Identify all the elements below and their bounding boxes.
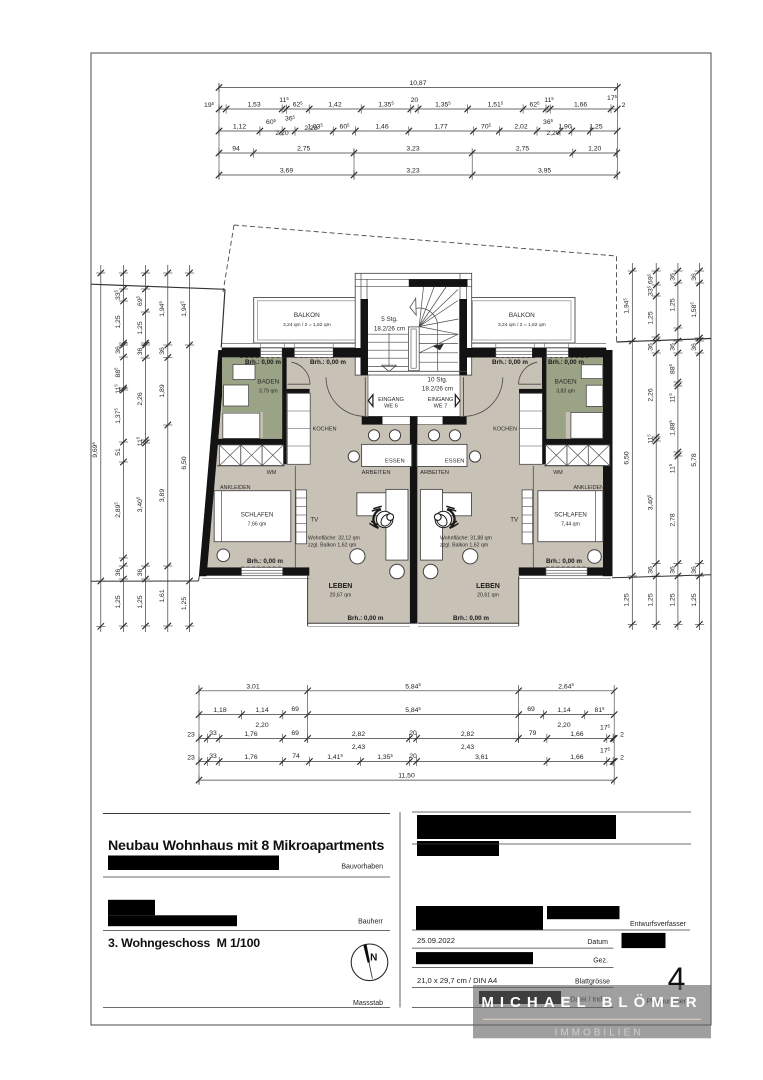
svg-text:1,25: 1,25 xyxy=(669,298,676,311)
svg-text:Brh.: 0,00 m: Brh.: 0,00 m xyxy=(453,615,489,622)
svg-text:3,89: 3,89 xyxy=(159,489,166,502)
svg-text:BADEN: BADEN xyxy=(555,378,577,385)
svg-text:ANKLEIDEN: ANKLEIDEN xyxy=(573,485,604,491)
svg-text:36: 36 xyxy=(669,343,676,351)
svg-text:MICHAEL BLÖMER: MICHAEL BLÖMER xyxy=(481,994,702,1011)
svg-text:Entwurfsverfasser: Entwurfsverfasser xyxy=(630,921,687,928)
svg-text:2,43: 2,43 xyxy=(352,744,365,751)
svg-text:2,78: 2,78 xyxy=(669,513,676,526)
svg-text:2,75: 2,75 xyxy=(297,146,310,153)
svg-text:25.09.2022: 25.09.2022 xyxy=(417,936,455,945)
svg-text:20,67 qm: 20,67 qm xyxy=(330,592,352,598)
svg-text:36: 36 xyxy=(115,569,122,577)
svg-text:LEBEN: LEBEN xyxy=(476,583,500,590)
svg-text:20: 20 xyxy=(409,730,417,737)
svg-text:Massstab: Massstab xyxy=(353,1000,383,1007)
svg-text:N: N xyxy=(370,952,377,963)
svg-text:1,25: 1,25 xyxy=(181,597,188,610)
svg-text:Brh.: 0,00 m: Brh.: 0,00 m xyxy=(245,359,281,366)
svg-text:2: 2 xyxy=(620,732,624,739)
svg-text:1,25: 1,25 xyxy=(115,315,122,328)
svg-text:3,23: 3,23 xyxy=(406,168,419,175)
svg-text:1,46: 1,46 xyxy=(375,124,388,131)
svg-text:79: 79 xyxy=(529,730,537,737)
svg-text:33: 33 xyxy=(209,753,217,760)
svg-text:Wohnfläche: 31,88 qm: Wohnfläche: 31,88 qm xyxy=(440,535,492,541)
svg-text:1,14: 1,14 xyxy=(557,707,570,714)
svg-text:3,61: 3,61 xyxy=(475,754,488,761)
svg-text:Wohnfläche: 32,12 qm: Wohnfläche: 32,12 qm xyxy=(308,535,360,541)
svg-text:ESSEN: ESSEN xyxy=(445,459,465,465)
svg-text:1,90: 1,90 xyxy=(558,124,571,131)
svg-text:1,25: 1,25 xyxy=(589,124,602,131)
svg-text:1,25: 1,25 xyxy=(648,311,655,324)
svg-text:36: 36 xyxy=(691,343,698,351)
svg-text:BALKON: BALKON xyxy=(294,312,320,319)
svg-text:1,20: 1,20 xyxy=(588,146,601,153)
svg-text:20: 20 xyxy=(409,753,417,760)
svg-text:Brh.: 0,00 m: Brh.: 0,00 m xyxy=(347,615,383,622)
svg-text:10,87: 10,87 xyxy=(409,80,426,87)
svg-text:1,66: 1,66 xyxy=(570,754,583,761)
svg-text:36: 36 xyxy=(137,348,144,356)
svg-text:18.2/26 cm: 18.2/26 cm xyxy=(374,326,405,333)
svg-text:20: 20 xyxy=(411,97,419,104)
svg-text:1,76: 1,76 xyxy=(244,754,257,761)
svg-text:1,76: 1,76 xyxy=(244,731,257,738)
svg-text:ARBEITEN: ARBEITEN xyxy=(420,470,449,476)
svg-text:36: 36 xyxy=(691,566,698,574)
svg-text:5 Stg.: 5 Stg. xyxy=(381,316,398,323)
svg-text:IMMOBILIEN: IMMOBILIEN xyxy=(555,1028,644,1039)
svg-text:2,02: 2,02 xyxy=(514,124,527,131)
svg-text:3,24 qm / 2 = 1,62 qm: 3,24 qm / 2 = 1,62 qm xyxy=(498,322,546,328)
svg-text:Datum: Datum xyxy=(587,939,608,946)
svg-text:2,20: 2,20 xyxy=(557,722,570,729)
svg-text:23: 23 xyxy=(187,732,195,739)
svg-text:1,89: 1,89 xyxy=(159,384,166,397)
svg-text:2,75: 2,75 xyxy=(516,146,529,153)
svg-text:Bauherr: Bauherr xyxy=(358,919,384,926)
svg-text:WM: WM xyxy=(553,470,563,476)
svg-text:ESSEN: ESSEN xyxy=(385,459,405,465)
svg-text:36: 36 xyxy=(691,273,698,281)
svg-text:7,44 qm: 7,44 qm xyxy=(561,522,580,528)
svg-text:51: 51 xyxy=(115,448,122,456)
svg-text:1,14: 1,14 xyxy=(255,707,268,714)
svg-text:20,61 qm: 20,61 qm xyxy=(477,592,499,598)
svg-text:1,18: 1,18 xyxy=(213,707,226,714)
svg-text:2,26: 2,26 xyxy=(137,392,144,405)
svg-text:WE 6: WE 6 xyxy=(384,404,398,410)
svg-text:SCHLAFEN: SCHLAFEN xyxy=(241,512,274,519)
svg-text:Neubau Wohnhaus mit 8 Mikroapa: Neubau Wohnhaus mit 8 Mikroapartments xyxy=(108,838,384,854)
svg-text:23: 23 xyxy=(187,755,195,762)
svg-text:1,53: 1,53 xyxy=(247,102,260,109)
svg-text:3,24 qm / 2 = 1,62 qm: 3,24 qm / 2 = 1,62 qm xyxy=(283,322,331,328)
svg-text:Brh.: 0,00 m: Brh.: 0,00 m xyxy=(492,359,528,366)
svg-text:Brh.: 0,00 m: Brh.: 0,00 m xyxy=(546,558,582,565)
svg-text:36: 36 xyxy=(648,566,655,574)
svg-text:11,50: 11,50 xyxy=(398,773,415,780)
svg-text:TV: TV xyxy=(510,517,519,524)
svg-text:KOCHEN: KOCHEN xyxy=(493,427,517,433)
svg-text:KOCHEN: KOCHEN xyxy=(313,427,337,433)
svg-text:Brh.: 0,00 m: Brh.: 0,00 m xyxy=(247,558,283,565)
svg-text:3,69: 3,69 xyxy=(280,168,293,175)
svg-text:2,20: 2,20 xyxy=(275,130,288,137)
svg-text:1,25: 1,25 xyxy=(137,595,144,608)
svg-text:2,20: 2,20 xyxy=(255,722,268,729)
svg-text:69: 69 xyxy=(291,706,299,713)
svg-text:ARBEITEN: ARBEITEN xyxy=(362,470,391,476)
svg-text:3,79 qm: 3,79 qm xyxy=(259,388,278,394)
svg-text:1,61: 1,61 xyxy=(159,589,166,602)
svg-text:74: 74 xyxy=(292,753,300,760)
svg-text:5,78: 5,78 xyxy=(691,453,698,466)
svg-text:1,66: 1,66 xyxy=(574,102,587,109)
svg-text:WE 7: WE 7 xyxy=(434,404,448,410)
svg-text:6,50: 6,50 xyxy=(181,456,188,469)
svg-text:3,01: 3,01 xyxy=(246,683,259,690)
svg-text:36: 36 xyxy=(669,273,676,281)
svg-text:EINGANG: EINGANG xyxy=(428,397,454,403)
svg-text:1,77: 1,77 xyxy=(434,124,447,131)
svg-text:18.2/26 cm: 18.2/26 cm xyxy=(422,386,453,393)
svg-text:36: 36 xyxy=(137,569,144,577)
svg-text:Brh.: 0,00 m: Brh.: 0,00 m xyxy=(310,359,346,366)
svg-text:3,23: 3,23 xyxy=(406,146,419,153)
svg-text:zzgl. Balkon 1,62 qm: zzgl. Balkon 1,62 qm xyxy=(440,543,488,549)
svg-text:Gez.: Gez. xyxy=(593,958,608,965)
svg-text:69: 69 xyxy=(527,706,535,713)
svg-text:1,42: 1,42 xyxy=(328,102,341,109)
svg-text:36: 36 xyxy=(115,346,122,354)
svg-text:1,25: 1,25 xyxy=(691,593,698,606)
svg-text:Blattgrösse: Blattgrösse xyxy=(575,979,610,986)
svg-text:21,0 x 29,7 cm / DIN A4: 21,0 x 29,7 cm / DIN A4 xyxy=(417,976,497,985)
svg-text:2: 2 xyxy=(622,102,626,109)
svg-text:2,43: 2,43 xyxy=(461,744,474,751)
svg-text:TV: TV xyxy=(310,517,319,524)
svg-text:1,25: 1,25 xyxy=(648,593,655,606)
svg-text:2,82: 2,82 xyxy=(352,731,365,738)
svg-text:33: 33 xyxy=(209,730,217,737)
svg-text:1,66: 1,66 xyxy=(570,731,583,738)
svg-text:Bauvorhaben: Bauvorhaben xyxy=(341,864,383,871)
svg-text:BALKON: BALKON xyxy=(509,312,535,319)
svg-text:2: 2 xyxy=(620,755,624,762)
svg-text:1,25: 1,25 xyxy=(669,593,676,606)
svg-text:Brh.: 0,00 m: Brh.: 0,00 m xyxy=(548,359,584,366)
svg-text:1,12: 1,12 xyxy=(233,124,246,131)
svg-text:3,83 qm: 3,83 qm xyxy=(556,388,575,394)
svg-text:2,82: 2,82 xyxy=(461,731,474,738)
svg-text:1,25: 1,25 xyxy=(137,321,144,334)
svg-text:36: 36 xyxy=(669,566,676,574)
svg-text:EINGANG: EINGANG xyxy=(378,397,404,403)
svg-text:10 Stg.: 10 Stg. xyxy=(428,377,448,384)
svg-text:2,20: 2,20 xyxy=(546,130,559,137)
svg-text:SCHLAFEN: SCHLAFEN xyxy=(554,512,587,519)
svg-text:94: 94 xyxy=(232,146,240,153)
svg-text:2,28: 2,28 xyxy=(304,125,317,132)
svg-text:3,95: 3,95 xyxy=(538,168,551,175)
svg-text:2,26: 2,26 xyxy=(648,388,655,401)
svg-text:WM: WM xyxy=(267,470,277,476)
svg-text:zzgl. Balkon 1,62 qm: zzgl. Balkon 1,62 qm xyxy=(308,543,356,549)
svg-text:6,50: 6,50 xyxy=(624,451,631,464)
svg-text:1,25: 1,25 xyxy=(115,595,122,608)
svg-text:69: 69 xyxy=(291,730,299,737)
svg-text:1,25: 1,25 xyxy=(624,593,631,606)
svg-text:3. Wohngeschoss M 1/100: 3. Wohngeschoss M 1/100 xyxy=(108,936,260,950)
svg-text:36: 36 xyxy=(648,343,655,351)
svg-text:ANKLEIDEN: ANKLEIDEN xyxy=(220,485,251,491)
svg-text:7,66 qm: 7,66 qm xyxy=(248,522,267,528)
svg-text:36: 36 xyxy=(159,347,166,355)
svg-text:BADEN: BADEN xyxy=(257,378,279,385)
svg-text:LEBEN: LEBEN xyxy=(329,583,353,590)
